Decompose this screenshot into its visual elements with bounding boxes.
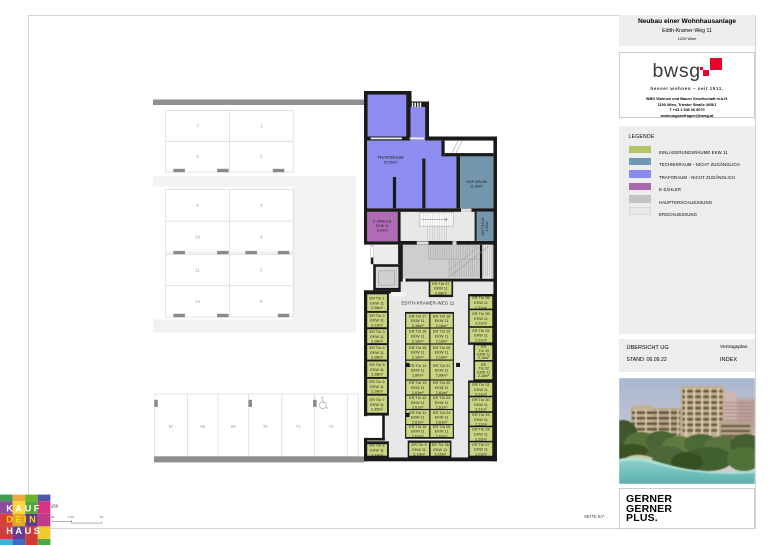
svg-text:TRAFORAUM: TRAFORAUM bbox=[378, 155, 405, 160]
svg-text:ER Tür 23: ER Tür 23 bbox=[433, 396, 450, 400]
svg-text:EKW 11: EKW 11 bbox=[434, 287, 448, 291]
svg-text:EKW 11: EKW 11 bbox=[370, 385, 384, 389]
svg-text:EKW 11: EKW 11 bbox=[474, 388, 488, 392]
svg-text:2,07m²: 2,07m² bbox=[436, 435, 449, 439]
svg-text:ER Tür 29: ER Tür 29 bbox=[472, 413, 489, 417]
svg-text:2,23m²: 2,23m² bbox=[475, 452, 488, 456]
svg-text:2,21m²: 2,21m² bbox=[475, 423, 488, 427]
svg-text:EKW 11: EKW 11 bbox=[411, 319, 425, 323]
svg-text:EKW 11: EKW 11 bbox=[433, 448, 447, 452]
svg-text:2,38m²: 2,38m² bbox=[371, 373, 384, 377]
svg-text:ER Tür 1: ER Tür 1 bbox=[370, 296, 385, 300]
svg-text:EKW 11: EKW 11 bbox=[411, 369, 425, 373]
svg-text:EKW 11: EKW 11 bbox=[370, 403, 384, 407]
svg-text:11,89m²: 11,89m² bbox=[470, 185, 484, 189]
svg-text:ER Tür 35: ER Tür 35 bbox=[472, 312, 489, 316]
svg-text:ER Tür 27: ER Tür 27 bbox=[472, 443, 489, 447]
svg-text:EKW 11: EKW 11 bbox=[435, 319, 449, 323]
svg-text:EKW 11: EKW 11 bbox=[474, 317, 488, 321]
svg-text:EKW 11: EKW 11 bbox=[370, 351, 384, 355]
svg-text:EKW 11: EKW 11 bbox=[411, 401, 425, 405]
svg-text:2,21m²: 2,21m² bbox=[475, 322, 488, 326]
svg-text:2,16m²: 2,16m² bbox=[371, 453, 384, 457]
svg-text:ER Tür 20: ER Tür 20 bbox=[433, 346, 450, 350]
svg-text:ER Tür 8: ER Tür 8 bbox=[370, 444, 385, 448]
svg-text:EKW 11: EKW 11 bbox=[435, 351, 449, 355]
svg-text:2,16m²: 2,16m² bbox=[436, 324, 449, 328]
svg-text:EKW 11: EKW 11 bbox=[411, 416, 425, 420]
svg-text:150: 150 bbox=[51, 504, 59, 509]
svg-text:2,61m²: 2,61m² bbox=[436, 406, 449, 410]
svg-text:2,5m: 2,5m bbox=[68, 515, 75, 519]
svg-text:EKW 11: EKW 11 bbox=[370, 335, 384, 339]
svg-text:0m: 0m bbox=[51, 515, 56, 519]
svg-text:EDITH-KRAMER-WEG 11: EDITH-KRAMER-WEG 11 bbox=[402, 300, 455, 305]
svg-text:72: 72 bbox=[329, 424, 334, 429]
svg-text:2,31m²: 2,31m² bbox=[475, 339, 488, 343]
svg-text:ER Tür 30: ER Tür 30 bbox=[472, 398, 489, 402]
svg-text:ER Tür 9: ER Tür 9 bbox=[412, 443, 427, 447]
svg-text:ER Tür 25: ER Tür 25 bbox=[433, 425, 450, 429]
svg-text:2,18m²: 2,18m² bbox=[478, 374, 490, 378]
svg-text:2,88m²: 2,88m² bbox=[436, 373, 449, 377]
svg-text:EKW 11: EKW 11 bbox=[411, 351, 425, 355]
svg-text:2,16m²: 2,16m² bbox=[412, 339, 425, 343]
svg-text:EKW 11: EKW 11 bbox=[474, 301, 488, 305]
svg-text:2,23m²: 2,23m² bbox=[371, 323, 384, 327]
svg-text:2,80m²: 2,80m² bbox=[412, 373, 425, 377]
svg-text:EKW 11: EKW 11 bbox=[370, 449, 384, 453]
svg-text:EKW 11: EKW 11 bbox=[411, 430, 425, 434]
svg-text:2,61m²: 2,61m² bbox=[412, 406, 425, 410]
svg-text:ER Tür 11: ER Tür 11 bbox=[409, 411, 426, 415]
svg-text:3,38m²: 3,38m² bbox=[485, 222, 489, 232]
svg-text:2,31m²: 2,31m² bbox=[475, 306, 488, 310]
svg-text:ER Tür 24: ER Tür 24 bbox=[433, 411, 450, 415]
svg-text:EKW 11: EKW 11 bbox=[474, 403, 488, 407]
svg-text:ER Tür 16: ER Tür 16 bbox=[409, 330, 426, 334]
svg-text:2,16m²: 2,16m² bbox=[412, 355, 425, 359]
svg-text:EKW 11: EKW 11 bbox=[474, 418, 488, 422]
svg-text:2,38m²: 2,38m² bbox=[371, 340, 384, 344]
svg-text:2,16m²: 2,16m² bbox=[412, 324, 425, 328]
svg-text:DEIN: DEIN bbox=[6, 515, 38, 525]
svg-text:EKW 11: EKW 11 bbox=[370, 319, 384, 323]
svg-text:12: 12 bbox=[195, 299, 200, 304]
svg-text:ER Tür 5: ER Tür 5 bbox=[370, 363, 385, 367]
svg-text:ER Tür 36: ER Tür 36 bbox=[472, 296, 489, 300]
svg-text:2,61m²: 2,61m² bbox=[412, 391, 425, 395]
svg-text:ER Tür 2: ER Tür 2 bbox=[370, 314, 385, 318]
svg-text:ER Tür 22: ER Tür 22 bbox=[433, 381, 450, 385]
svg-text:2,21m²: 2,21m² bbox=[475, 408, 488, 412]
svg-text:2,68m²: 2,68m² bbox=[371, 306, 384, 310]
svg-text:ER Tür 4: ER Tür 4 bbox=[370, 346, 385, 350]
svg-text:2,08m²: 2,08m² bbox=[435, 291, 448, 295]
svg-text:69: 69 bbox=[231, 424, 236, 429]
svg-text:ER Tür 10: ER Tür 10 bbox=[409, 425, 426, 429]
svg-text:3,13m²: 3,13m² bbox=[413, 453, 426, 457]
svg-text:EKW 11: EKW 11 bbox=[474, 334, 488, 338]
svg-text:KAUF: KAUF bbox=[6, 504, 42, 514]
svg-text:BATT.RAUM: BATT.RAUM bbox=[481, 217, 485, 235]
svg-text:ER Tür 12: ER Tür 12 bbox=[409, 396, 426, 400]
svg-text:2,61m²: 2,61m² bbox=[412, 435, 425, 439]
svg-text:ER Tür 15: ER Tür 15 bbox=[409, 346, 426, 350]
svg-text:10: 10 bbox=[195, 235, 200, 240]
svg-text:ER Tür 34: ER Tür 34 bbox=[472, 329, 489, 333]
svg-text:6,24m²: 6,24m² bbox=[377, 228, 389, 232]
svg-text:ER Tür 17: ER Tür 17 bbox=[409, 314, 426, 318]
svg-text:52,06m²: 52,06m² bbox=[384, 161, 398, 165]
svg-text:EKW 11: EKW 11 bbox=[435, 386, 449, 390]
svg-text:2,16m²: 2,16m² bbox=[436, 339, 449, 343]
svg-text:EKW 11: EKW 11 bbox=[412, 448, 426, 452]
svg-text:ER Tür 18: ER Tür 18 bbox=[433, 314, 450, 318]
svg-text:ER Tür 14: ER Tür 14 bbox=[409, 364, 426, 368]
svg-text:EKW 11: EKW 11 bbox=[435, 416, 449, 420]
svg-text:EKW 11: EKW 11 bbox=[435, 369, 449, 373]
svg-text:EKW 11: EKW 11 bbox=[474, 448, 488, 452]
svg-text:EKW 11: EKW 11 bbox=[411, 386, 425, 390]
svg-text:2,21m²: 2,21m² bbox=[475, 393, 488, 397]
svg-text:2,18m²: 2,18m² bbox=[478, 356, 490, 360]
svg-text:EKW 11: EKW 11 bbox=[376, 224, 389, 228]
svg-text:EKW 11: EKW 11 bbox=[435, 430, 449, 434]
svg-text:EKW 11: EKW 11 bbox=[370, 301, 384, 305]
svg-text:ER Tür 7: ER Tür 7 bbox=[370, 398, 385, 402]
svg-text:70: 70 bbox=[263, 424, 268, 429]
svg-text:EKW 11: EKW 11 bbox=[474, 433, 488, 437]
svg-text:ER Tür 31: ER Tür 31 bbox=[472, 383, 489, 387]
svg-text:71: 71 bbox=[296, 424, 301, 429]
svg-text:3,15m²: 3,15m² bbox=[434, 453, 447, 457]
svg-text:2,26m²: 2,26m² bbox=[475, 437, 488, 441]
svg-text:5m: 5m bbox=[100, 515, 105, 519]
svg-text:ER Tür 13: ER Tür 13 bbox=[409, 381, 426, 385]
svg-text:2,45m²: 2,45m² bbox=[371, 408, 384, 412]
svg-text:67: 67 bbox=[169, 424, 174, 429]
svg-text:68: 68 bbox=[200, 424, 205, 429]
svg-text:2,38m²: 2,38m² bbox=[371, 390, 384, 394]
svg-text:NSP-RAUM: NSP-RAUM bbox=[466, 179, 487, 184]
svg-text:ER Tür 21: ER Tür 21 bbox=[433, 364, 450, 368]
svg-text:11: 11 bbox=[195, 268, 200, 273]
svg-text:HAUS: HAUS bbox=[6, 526, 42, 536]
svg-text:ER Tür 28: ER Tür 28 bbox=[472, 428, 489, 432]
svg-text:EKW 11: EKW 11 bbox=[435, 401, 449, 405]
svg-text:ER Tür 19: ER Tür 19 bbox=[433, 330, 450, 334]
svg-text:EKW 11: EKW 11 bbox=[370, 368, 384, 372]
svg-text:E-ZÄHLER: E-ZÄHLER bbox=[373, 219, 392, 223]
svg-text:2,61m²: 2,61m² bbox=[436, 391, 449, 395]
svg-text:ER Tür 6: ER Tür 6 bbox=[370, 380, 385, 384]
svg-text:ER Tür 3: ER Tür 3 bbox=[370, 330, 385, 334]
svg-text:ER Tür 37: ER Tür 37 bbox=[432, 282, 449, 286]
svg-text:ER Tür 26: ER Tür 26 bbox=[432, 443, 449, 447]
svg-text:EKW 11: EKW 11 bbox=[411, 335, 425, 339]
svg-text:2,38m²: 2,38m² bbox=[371, 356, 384, 360]
svg-text:EKW 11: EKW 11 bbox=[435, 335, 449, 339]
svg-text:2,16m²: 2,16m² bbox=[436, 355, 449, 359]
